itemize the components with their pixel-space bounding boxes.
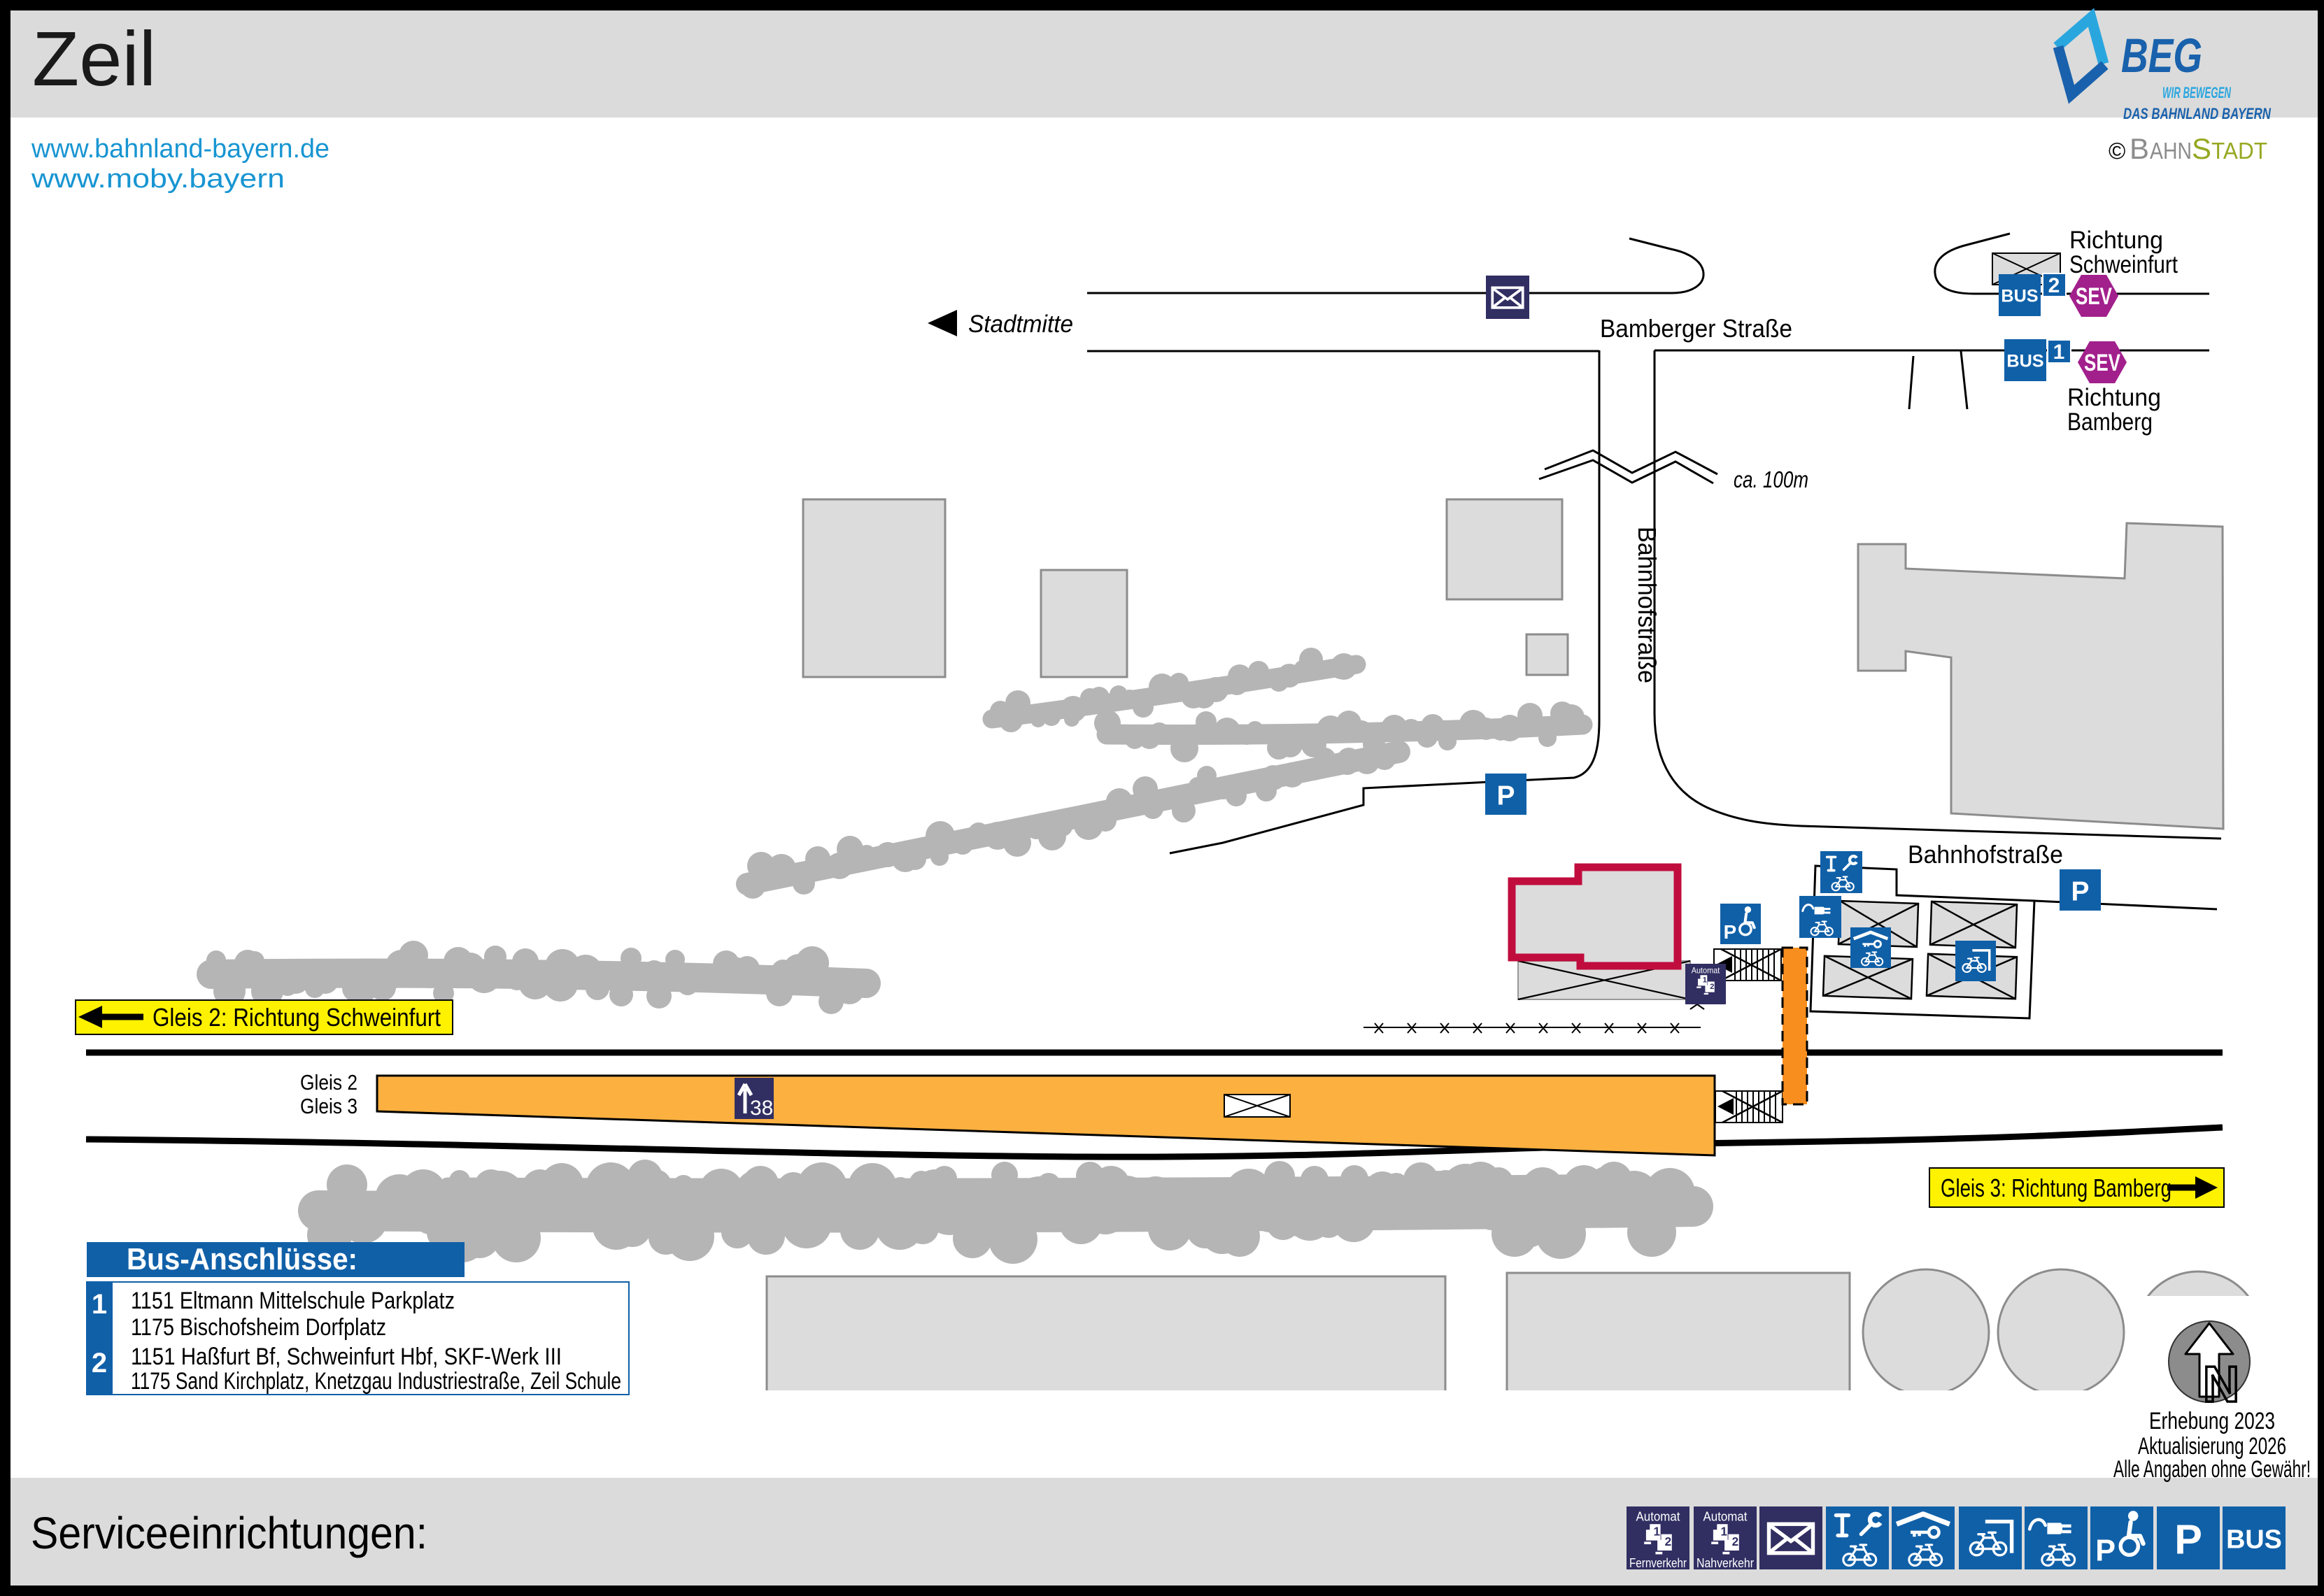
svg-text:www.moby.bayern: www.moby.bayern bbox=[31, 164, 285, 194]
svg-text:Gleis 2: Richtung Schweinfurt: Gleis 2: Richtung Schweinfurt bbox=[153, 1003, 441, 1032]
svg-text:Zeil: Zeil bbox=[32, 16, 156, 102]
svg-text:Richtung: Richtung bbox=[2067, 384, 2161, 411]
svg-text:©: © bbox=[2109, 138, 2125, 164]
svg-text:Bahnhofstraße: Bahnhofstraße bbox=[1633, 527, 1661, 683]
svg-text:Gleis 2: Gleis 2 bbox=[300, 1070, 357, 1095]
svg-text:Gleis 3: Gleis 3 bbox=[300, 1094, 357, 1118]
svg-text:1175 Bischofsheim Dorfplatz: 1175 Bischofsheim Dorfplatz bbox=[131, 1314, 386, 1341]
svg-text:B: B bbox=[2130, 132, 2149, 165]
svg-text:1: 1 bbox=[92, 1289, 107, 1320]
svg-text:Nahverkehr: Nahverkehr bbox=[1696, 1556, 1754, 1570]
svg-text:1151 Haßfurt Bf, Schweinfurt H: 1151 Haßfurt Bf, Schweinfurt Hbf, SKF-We… bbox=[131, 1344, 562, 1370]
svg-text:Alle Angaben ohne Gewähr!: Alle Angaben ohne Gewähr! bbox=[2113, 1456, 2311, 1483]
svg-text:ca. 100m: ca. 100m bbox=[1734, 466, 1808, 492]
svg-text:DAS BAHNLAND BAYERN: DAS BAHNLAND BAYERN bbox=[2123, 105, 2272, 122]
svg-text:1175 Sand Kirchplatz, Knetzgau: 1175 Sand Kirchplatz, Knetzgau Industrie… bbox=[131, 1368, 621, 1395]
svg-text:AHN: AHN bbox=[2150, 138, 2192, 164]
svg-text:Bamberg: Bamberg bbox=[2067, 408, 2153, 436]
svg-text:Gleis 3: Richtung Bamberg: Gleis 3: Richtung Bamberg bbox=[1941, 1174, 2171, 1202]
svg-text:1: 1 bbox=[2053, 341, 2065, 364]
svg-text:Stadtmitte: Stadtmitte bbox=[968, 311, 1073, 338]
svg-text:Serviceeinrichtungen:: Serviceeinrichtungen: bbox=[31, 1508, 427, 1558]
svg-text:www.bahnland-bayern.de: www.bahnland-bayern.de bbox=[31, 134, 330, 164]
svg-text:BEG: BEG bbox=[2121, 29, 2202, 83]
svg-text:1151 Eltmann Mittelschule Park: 1151 Eltmann Mittelschule Parkplatz bbox=[131, 1288, 455, 1314]
svg-text:Erhebung 2023: Erhebung 2023 bbox=[2149, 1408, 2275, 1434]
svg-text:2: 2 bbox=[2048, 274, 2060, 297]
svg-text:38: 38 bbox=[750, 1097, 773, 1120]
svg-text:Bus-Anschlüsse:: Bus-Anschlüsse: bbox=[127, 1242, 357, 1276]
svg-text:WIR BEWEGEN: WIR BEWEGEN bbox=[2162, 84, 2232, 101]
svg-text:TADT: TADT bbox=[2211, 138, 2267, 164]
svg-text:2: 2 bbox=[92, 1348, 107, 1378]
svg-text:S: S bbox=[2192, 132, 2211, 165]
svg-text:N: N bbox=[2203, 1357, 2239, 1413]
svg-text:Bahnhofstraße: Bahnhofstraße bbox=[1908, 840, 2063, 869]
svg-text:Fernverkehr: Fernverkehr bbox=[1629, 1556, 1687, 1570]
svg-text:Schweinfurt: Schweinfurt bbox=[2069, 251, 2178, 278]
svg-text:Bamberger Straße: Bamberger Straße bbox=[1600, 314, 1792, 343]
svg-text:Richtung: Richtung bbox=[2069, 227, 2163, 254]
